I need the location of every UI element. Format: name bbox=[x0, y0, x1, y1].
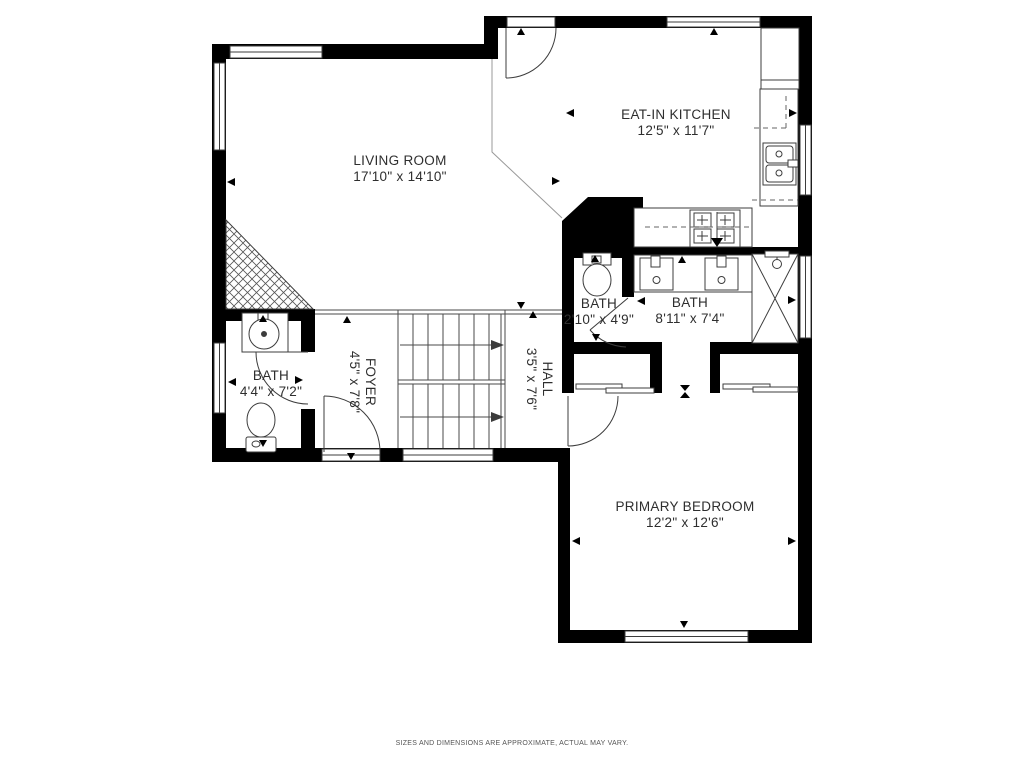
hall-dims: 3'5" x 7'6" bbox=[523, 348, 539, 410]
door-kitchen-entry bbox=[506, 28, 556, 78]
hall-name: HALL bbox=[539, 348, 555, 410]
living-room-dims: 17'10" x 14'10" bbox=[353, 169, 447, 185]
living-room-name: LIVING ROOM bbox=[353, 153, 447, 169]
hatched-understair-area bbox=[226, 220, 313, 309]
window-stairs-bottom bbox=[403, 449, 493, 461]
window-bath-right bbox=[800, 256, 811, 338]
floor-lines bbox=[315, 59, 562, 314]
room-label-wc-bath: BATH 2'10" x 4'9" bbox=[564, 296, 634, 328]
disclaimer-text: SIZES AND DIMENSIONS ARE APPROXIMATE, AC… bbox=[0, 740, 1024, 747]
floor-plan: LIVING ROOM 17'10" x 14'10" EAT-IN KITCH… bbox=[0, 0, 1024, 768]
primary-bath-dims: 8'11" x 7'4" bbox=[655, 311, 724, 327]
room-label-primary-bedroom: PRIMARY BEDROOM 12'2" x 12'6" bbox=[615, 499, 754, 531]
window-bath-left bbox=[214, 343, 225, 413]
window-living-left bbox=[214, 63, 225, 150]
refrigerator bbox=[761, 28, 799, 89]
kitchen-door-header bbox=[507, 17, 555, 27]
window-living-top bbox=[230, 46, 322, 58]
wc-bath-dims: 2'10" x 4'9" bbox=[564, 312, 634, 328]
window-kitchen-top bbox=[667, 17, 760, 27]
foyer-name: FOYER bbox=[362, 351, 378, 413]
room-label-foyer: FOYER 4'5" x 7'8" bbox=[346, 351, 378, 413]
hall-bath-dims: 4'4" x 7'2" bbox=[240, 384, 302, 400]
room-label-kitchen: EAT-IN KITCHEN 12'5" x 11'7" bbox=[621, 107, 731, 139]
stair-direction-arrows bbox=[400, 340, 504, 422]
wc-bath-name: BATH bbox=[564, 296, 634, 312]
floor-plan-drawing bbox=[0, 0, 1024, 768]
room-label-hall-bath: BATH 4'4" x 7'2" bbox=[240, 368, 302, 400]
primary-bedroom-name: PRIMARY BEDROOM bbox=[615, 499, 754, 515]
window-kitchen-right bbox=[800, 125, 811, 195]
kitchen-name: EAT-IN KITCHEN bbox=[621, 107, 731, 123]
kitchen-dims: 12'5" x 11'7" bbox=[621, 123, 731, 139]
hall-bath-name: BATH bbox=[240, 368, 302, 384]
door-primary-bedroom bbox=[568, 396, 618, 446]
stove bbox=[690, 210, 740, 247]
stairs bbox=[398, 310, 505, 448]
room-label-primary-bath: BATH 8'11" x 7'4" bbox=[655, 295, 724, 327]
primary-bath-name: BATH bbox=[655, 295, 724, 311]
hall-bath-toilet bbox=[246, 403, 276, 452]
room-label-living-room: LIVING ROOM 17'10" x 14'10" bbox=[353, 153, 447, 185]
foyer-dims: 4'5" x 7'8" bbox=[346, 351, 362, 413]
primary-bath-vanity bbox=[634, 255, 753, 292]
room-label-hall: HALL 3'5" x 7'6" bbox=[523, 348, 555, 410]
kitchen-sink bbox=[763, 143, 798, 185]
primary-bedroom-dims: 12'2" x 12'6" bbox=[615, 515, 754, 531]
window-bedroom-bottom bbox=[625, 631, 748, 642]
shower bbox=[752, 251, 798, 343]
